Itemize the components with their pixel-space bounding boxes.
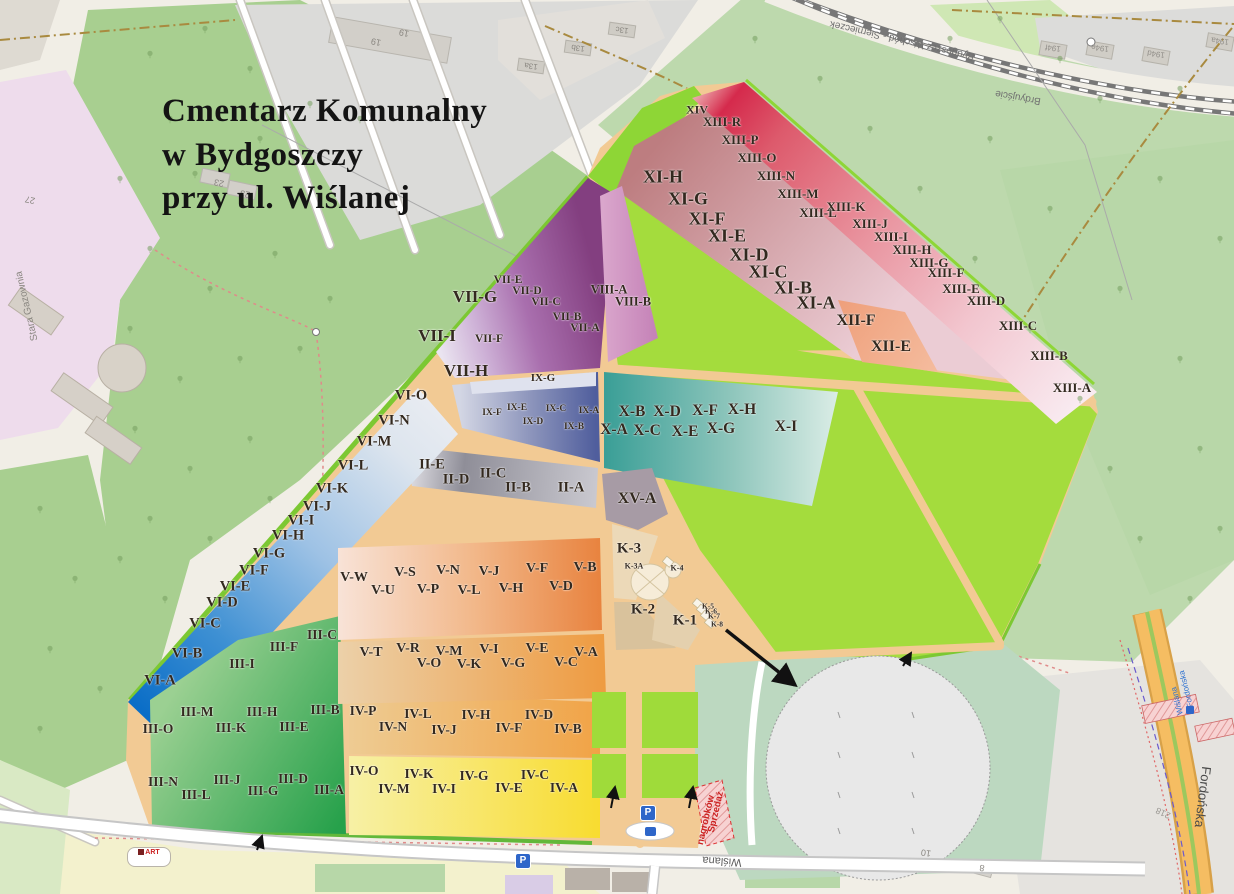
title-line-1: Cmentarz Komunalny [162, 90, 487, 134]
shop-logo-label: ART [145, 849, 159, 856]
title-line-2: w Bydgoszczy [162, 134, 487, 178]
parking-icon: P [640, 805, 656, 821]
shop-logo-icon [138, 849, 144, 855]
title-line-3: przy ul. Wiślanej [162, 177, 487, 221]
moped-parking-icon [645, 827, 656, 836]
shop-logo-badge: ART [127, 847, 171, 867]
cemetery-map-screenshot: XIVXIII-RXIII-PXIII-OXIII-NXIII-MXIII-LX… [0, 0, 1234, 894]
bus-stop-icon [1186, 706, 1194, 714]
section-area-v-upper [338, 538, 602, 640]
section-area-v-lower [338, 634, 606, 704]
section-area-iv-lower [349, 756, 600, 838]
parking-icon: P [515, 853, 531, 869]
map-title: Cmentarz Komunalny w Bydgoszczy przy ul.… [162, 90, 487, 221]
